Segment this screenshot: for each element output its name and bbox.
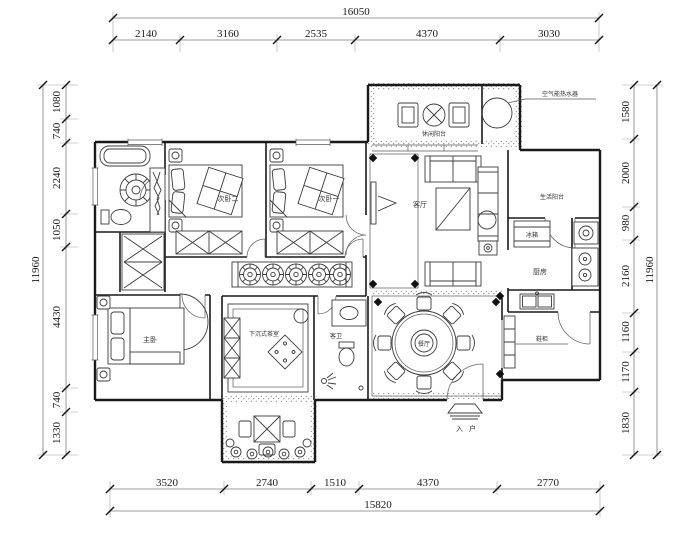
room-living: 客厅 xyxy=(369,154,498,288)
label-bedroom-2: 次卧二 xyxy=(218,194,239,203)
label-bedroom-1: 次卧一 xyxy=(319,194,340,203)
sofa-bottom xyxy=(425,262,481,286)
label-shoe-cabinet: 鞋柜 xyxy=(536,335,548,343)
label-service-balcony: 生活阳台 xyxy=(540,193,564,201)
floor-plan-canvas: 16050 2140 3160 2535 4370 3030 3520 2740… xyxy=(0,0,700,560)
dim-bottom-seg-4: 2770 xyxy=(537,477,560,489)
dim-right-seg-5: 1170 xyxy=(620,361,632,383)
room-master: 主卧 xyxy=(97,234,208,381)
dim-bottom-seg-3: 4370 xyxy=(417,477,440,489)
dimension-chain-left: 1080 740 2240 1050 4430 740 1330 11960 xyxy=(30,81,78,459)
dim-top-seg-1: 3160 xyxy=(217,28,240,40)
room-master-bath xyxy=(100,146,165,232)
label-entry: 入户 xyxy=(456,424,482,433)
vanity xyxy=(332,300,366,326)
room-garden-balcony xyxy=(226,416,311,459)
floor-plan: 次卧二 次卧一 休闲阳台 空气能热水器 xyxy=(92,85,601,462)
entry-hall: 鞋柜 入户 xyxy=(448,292,568,433)
dim-left-seg-6: 1330 xyxy=(51,422,63,445)
dim-left-seg-5: 740 xyxy=(51,391,63,408)
label-leisure-balcony: 休闲阳台 xyxy=(422,130,446,138)
dimension-chain-bottom: 3520 2740 1510 4370 2770 15820 xyxy=(106,477,604,517)
floor-plan-drawing: 16050 2140 3160 2535 4370 3030 3520 2740… xyxy=(0,0,700,560)
washing-machine xyxy=(574,222,598,244)
dim-bottom-seg-0: 3520 xyxy=(156,477,179,489)
sofa-right xyxy=(478,167,498,241)
dimension-chain-top: 16050 2140 3160 2535 4370 3030 xyxy=(109,6,603,52)
label-bathroom: 客卫 xyxy=(330,332,342,340)
dim-top-seg-0: 2140 xyxy=(135,28,158,40)
plant xyxy=(294,309,308,323)
dim-top-total: 16050 xyxy=(342,6,370,18)
dimension-chain-right: 1580 2000 980 2160 1160 1170 1830 11960 xyxy=(620,81,663,459)
tv-panel xyxy=(371,182,376,224)
dim-top-seg-3: 4370 xyxy=(416,28,439,40)
dim-bottom-seg-1: 2740 xyxy=(256,477,279,489)
room-bathroom: 客卫 xyxy=(322,300,367,390)
dim-left-total: 11960 xyxy=(30,256,42,284)
tea-table xyxy=(268,335,302,369)
room-bedroom-2: 次卧二 xyxy=(169,149,243,254)
label-dining: 餐厅 xyxy=(418,340,430,348)
label-water-heater: 空气能热水器 xyxy=(542,90,578,98)
room-dining: 餐厅 xyxy=(374,293,501,394)
dim-right-seg-1: 2000 xyxy=(620,162,632,185)
hallway-runner xyxy=(232,262,352,287)
dim-left-seg-2: 2240 xyxy=(51,167,63,190)
dim-left-seg-0: 1080 xyxy=(51,91,63,114)
label-tea-room: 下沉式茶室 xyxy=(249,330,279,338)
sink xyxy=(520,292,554,309)
shower-head xyxy=(322,373,337,389)
label-kitchen: 厨房 xyxy=(533,267,547,276)
dim-right-total: 11960 xyxy=(644,256,656,284)
master-closet xyxy=(122,234,164,290)
fridge: 冰箱 xyxy=(514,221,550,247)
dim-right-seg-0: 1580 xyxy=(620,101,632,124)
toilet xyxy=(101,210,131,225)
dim-top-seg-2: 2535 xyxy=(305,28,328,40)
dim-bottom-seg-2: 1510 xyxy=(324,477,347,489)
dim-left-seg-1: 740 xyxy=(51,122,63,139)
room-leisure-balcony: 休闲阳台 空气能热水器 xyxy=(398,90,596,138)
dim-right-seg-4: 1160 xyxy=(620,321,632,343)
coffee-table xyxy=(436,188,470,230)
water-heater xyxy=(482,98,512,128)
toilet xyxy=(339,342,354,366)
dim-right-seg-2: 980 xyxy=(620,214,632,231)
room-kitchen: 生活阳台 冰箱 厨房 xyxy=(514,193,598,309)
label-living: 客厅 xyxy=(413,200,427,209)
entry-canopy xyxy=(448,404,482,419)
sofa-top xyxy=(425,156,481,182)
room-bedroom-1: 次卧一 xyxy=(270,149,344,254)
dim-left-seg-3: 1050 xyxy=(51,219,63,242)
stove xyxy=(572,248,598,286)
dim-right-seg-3: 2160 xyxy=(620,265,632,288)
label-master: 主卧 xyxy=(143,335,157,344)
room-tea: 下沉式茶室 xyxy=(224,304,308,392)
shower-mosaic-circle xyxy=(120,174,152,206)
dim-right-seg-6: 1830 xyxy=(620,412,632,435)
side-table xyxy=(479,241,497,255)
dim-left-seg-4: 4430 xyxy=(51,306,63,329)
tea-cabinet xyxy=(224,318,240,378)
dim-bottom-total: 15820 xyxy=(364,499,392,511)
dim-top-seg-4: 3030 xyxy=(538,28,561,40)
label-fridge: 冰箱 xyxy=(526,231,538,239)
